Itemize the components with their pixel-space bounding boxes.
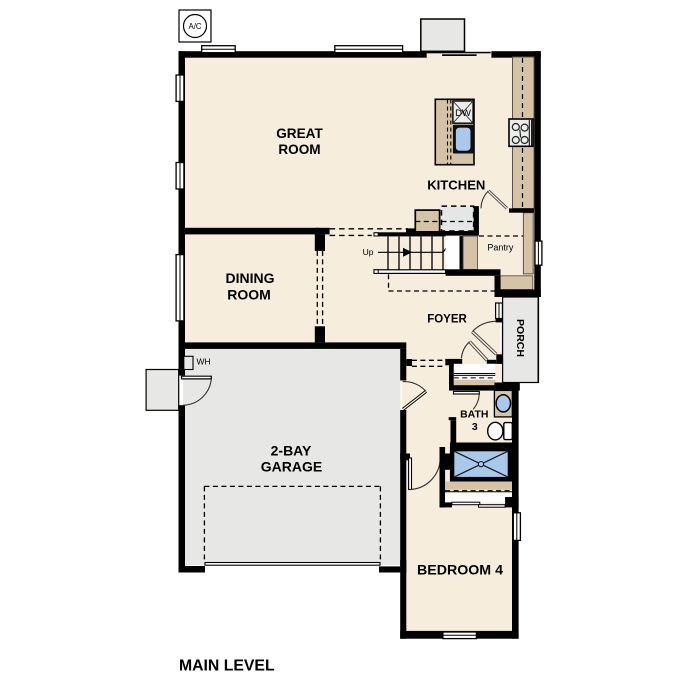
svg-text:Pantry: Pantry: [487, 242, 514, 252]
svg-text:KITCHEN: KITCHEN: [427, 178, 485, 193]
svg-text:ROOM: ROOM: [278, 142, 320, 157]
svg-text:BEDROOM 4: BEDROOM 4: [417, 563, 503, 579]
svg-text:BATH: BATH: [460, 409, 488, 421]
svg-text:WH: WH: [197, 357, 211, 367]
svg-text:GARAGE: GARAGE: [261, 459, 322, 475]
svg-text:DINING: DINING: [226, 270, 275, 286]
svg-text:GREAT: GREAT: [276, 126, 323, 141]
svg-text:3: 3: [472, 421, 478, 433]
svg-text:2-BAY: 2-BAY: [271, 443, 312, 459]
svg-text:DW: DW: [455, 108, 471, 119]
svg-text:Up: Up: [363, 247, 374, 257]
svg-text:ROOM: ROOM: [227, 287, 271, 303]
svg-text:MAIN LEVEL: MAIN LEVEL: [179, 658, 275, 675]
svg-text:A/C: A/C: [189, 22, 202, 31]
svg-text:FOYER: FOYER: [427, 314, 467, 326]
svg-text:PORCH: PORCH: [514, 319, 526, 357]
